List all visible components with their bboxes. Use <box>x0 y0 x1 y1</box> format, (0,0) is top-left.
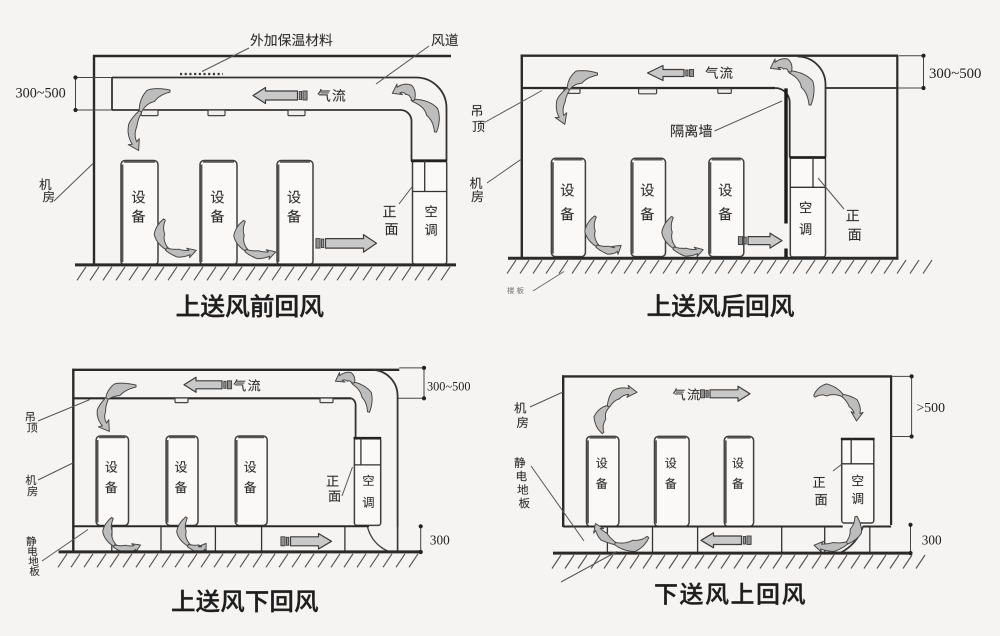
svg-text:300~500: 300~500 <box>427 380 471 394</box>
svg-text:300~500: 300~500 <box>929 66 981 82</box>
svg-text:300: 300 <box>430 532 450 547</box>
svg-text:>500: >500 <box>917 400 946 415</box>
svg-text:300: 300 <box>922 533 942 548</box>
svg-text:300~500: 300~500 <box>16 86 66 102</box>
